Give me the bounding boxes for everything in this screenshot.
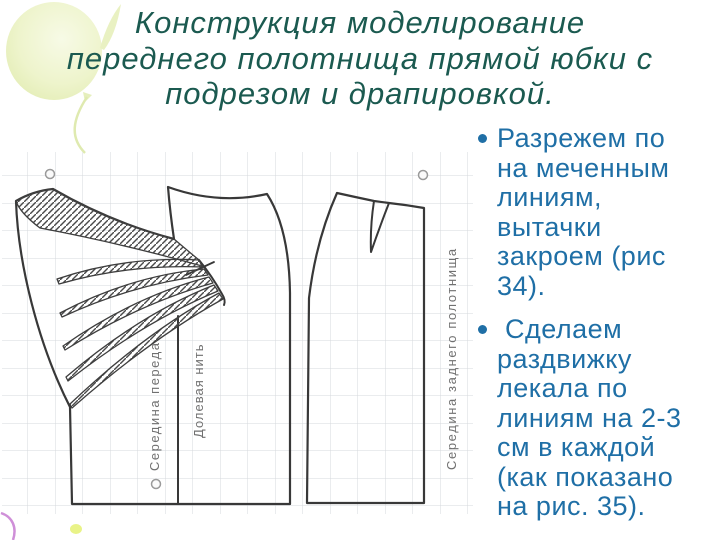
list-line: закроем (рис [497, 242, 720, 272]
list-line: вытачки [497, 213, 720, 243]
title-line-3: подрезом и драпировкой. [0, 76, 720, 112]
list-line: 34). [497, 272, 720, 302]
highlight-dot [70, 524, 82, 534]
slide-background: Середина переда Долевая нить Середина за… [0, 0, 720, 540]
list-line: (как показано [497, 463, 720, 493]
list-line: линиям, [497, 183, 720, 213]
pattern-diagram: Середина переда Долевая нить Середина за… [0, 148, 475, 518]
list-line: на меченным [497, 154, 720, 184]
list-line: Сделаем [497, 315, 720, 345]
title-line-2: переднего полотнища прямой юбки с [0, 41, 720, 77]
pin-circle [419, 171, 428, 180]
list-line: см в каждой [497, 433, 720, 463]
page-title: Конструкция моделирование переднего поло… [0, 5, 720, 112]
list-line: линиям на 2-3 [497, 404, 720, 434]
center-back-label: Середина заднего полотнища [444, 247, 459, 470]
center-front-label: Середина переда [147, 342, 162, 471]
bullet-dot-icon [478, 325, 487, 334]
pin-circle [152, 480, 161, 489]
content-list: Разрежем по на меченным линиям, вытачки … [497, 124, 720, 522]
title-line-1: Конструкция моделирование [0, 5, 720, 41]
list-line: лекала по [497, 374, 720, 404]
pin-circle [46, 170, 55, 179]
list-line: раздвижку [497, 345, 720, 375]
list-line: Разрежем по [497, 124, 720, 154]
grain-line-label: Долевая нить [191, 343, 206, 438]
bullet-dot-icon [478, 134, 487, 143]
list-item: Разрежем по на меченным линиям, вытачки … [497, 124, 720, 301]
list-item: Сделаем раздвижку лекала по линиям на 2-… [497, 315, 720, 522]
list-line: на рис. 35). [497, 492, 720, 522]
